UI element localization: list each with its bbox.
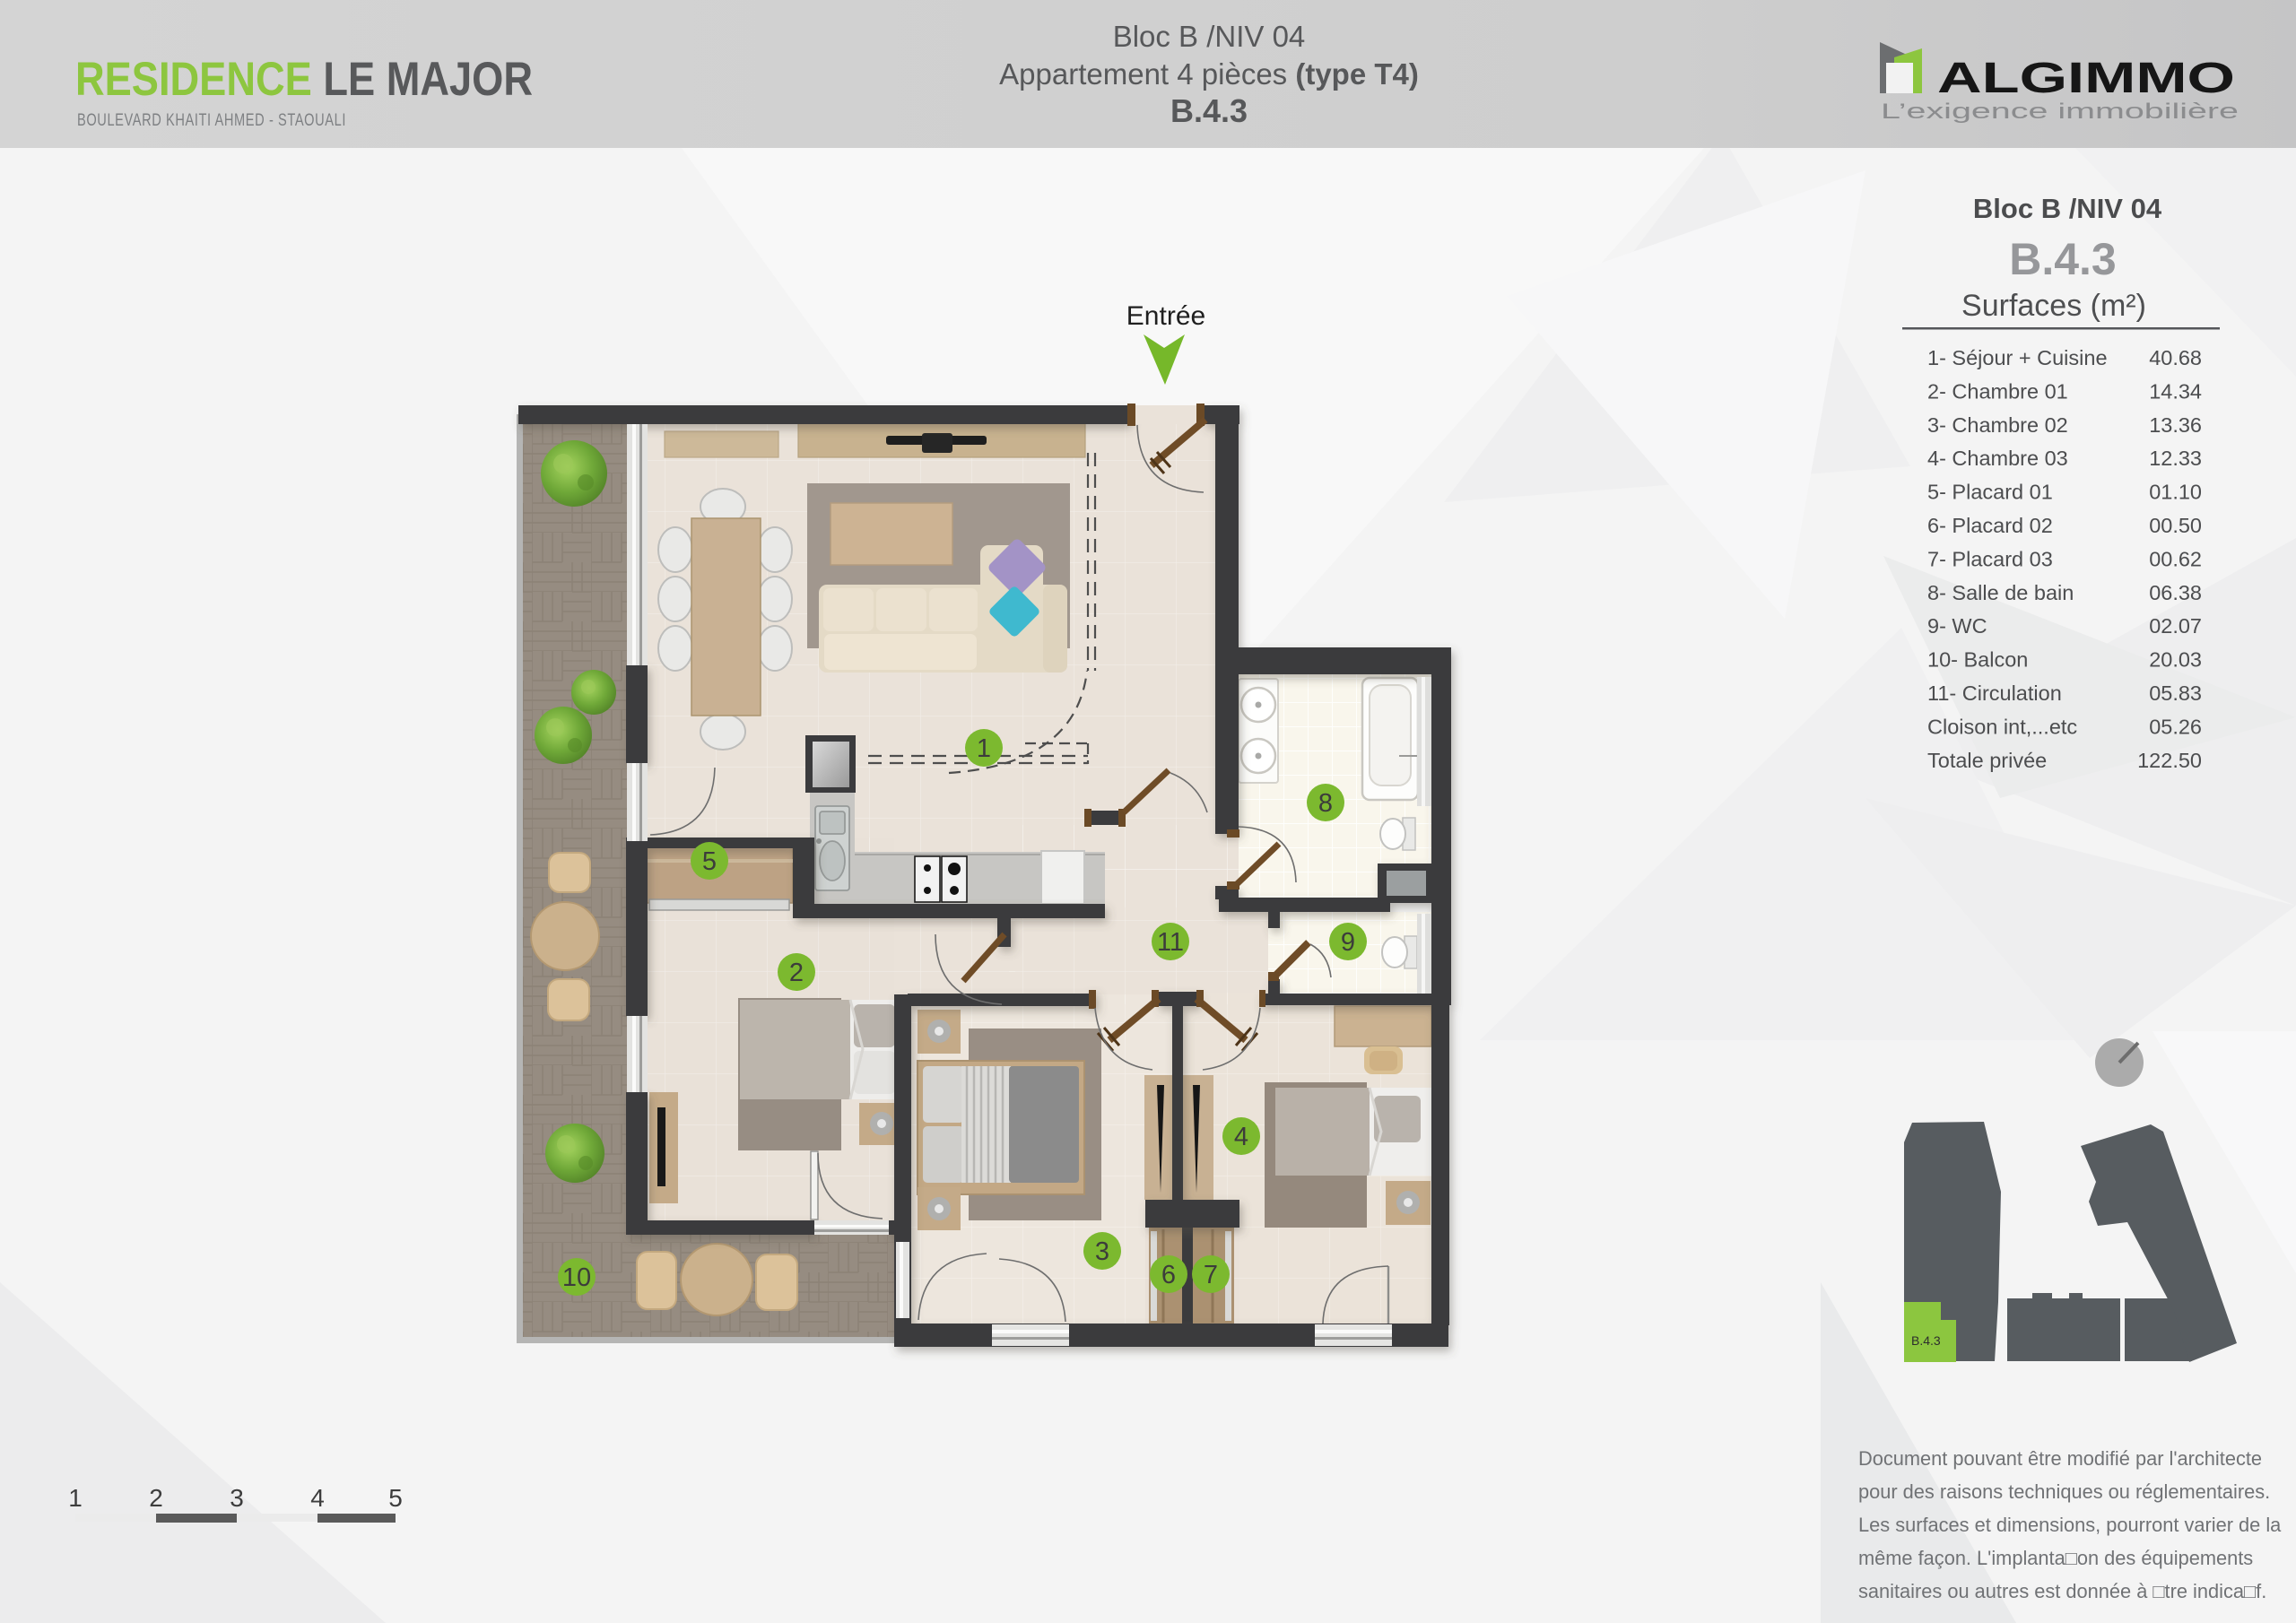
svg-text:Totale privée: Totale privée [1927, 749, 2047, 772]
svg-text:11: 11 [1157, 928, 1184, 957]
svg-text:7- Placard 03: 7- Placard 03 [1927, 547, 2053, 570]
svg-text:05.26: 05.26 [2149, 715, 2202, 738]
svg-text:00.50: 00.50 [2149, 514, 2202, 537]
svg-text:05.83: 05.83 [2149, 681, 2202, 705]
svg-text:RESIDENCE LE MAJOR: RESIDENCE LE MAJOR [75, 53, 533, 106]
svg-text:5: 5 [702, 847, 717, 876]
svg-text:3- Chambre 02: 3- Chambre 02 [1927, 413, 2068, 437]
svg-text:11- Circulation: 11- Circulation [1927, 681, 2062, 705]
svg-text:sanitaires ou autres est donn: sanitaires ou autres est donnée à □tre i… [1858, 1580, 2266, 1602]
svg-text:Bloc B /NIV 04: Bloc B /NIV 04 [1973, 193, 2162, 224]
svg-text:14.34: 14.34 [2149, 379, 2202, 403]
svg-text:même façon. L'implanta□on des: même façon. L'implanta□on des équipement… [1858, 1547, 2253, 1569]
svg-text:40.68: 40.68 [2149, 346, 2202, 369]
svg-text:B.4.3: B.4.3 [1911, 1333, 1941, 1348]
svg-text:4: 4 [310, 1484, 325, 1512]
svg-text:pour des raisons techniques ou: pour des raisons techniques ou réglement… [1858, 1480, 2270, 1503]
svg-text:01.10: 01.10 [2149, 481, 2202, 504]
svg-text:Bloc B /NIV 04: Bloc B /NIV 04 [1113, 20, 1306, 53]
svg-text:3: 3 [230, 1484, 244, 1512]
svg-text:9: 9 [1341, 928, 1355, 957]
svg-text:4- Chambre 03: 4- Chambre 03 [1927, 447, 2068, 470]
svg-text:ALGIMMO: ALGIMMO [1937, 55, 2235, 102]
svg-text:20.03: 20.03 [2149, 648, 2202, 672]
svg-text:9- WC: 9- WC [1927, 614, 1987, 638]
svg-text:2: 2 [789, 959, 804, 987]
svg-text:13.36: 13.36 [2149, 413, 2202, 437]
svg-text:BOULEVARD KHAITI AHMED - STAOU: BOULEVARD KHAITI AHMED - STAOUALI [77, 110, 346, 130]
svg-text:8- Salle de bain: 8- Salle de bain [1927, 581, 2074, 604]
svg-text:2- Chambre 01: 2- Chambre 01 [1927, 379, 2068, 403]
svg-text:10- Balcon: 10- Balcon [1927, 648, 2028, 672]
svg-text:8: 8 [1318, 789, 1333, 818]
svg-text:3: 3 [1095, 1237, 1109, 1266]
svg-text:6- Placard 02: 6- Placard 02 [1927, 514, 2053, 537]
svg-text:B.4.3: B.4.3 [2009, 234, 2117, 284]
svg-text:122.50: 122.50 [2137, 749, 2202, 772]
svg-text:12.33: 12.33 [2149, 447, 2202, 470]
svg-text:2: 2 [149, 1484, 163, 1512]
svg-text:7: 7 [1204, 1261, 1218, 1289]
svg-text:6: 6 [1161, 1261, 1176, 1289]
svg-text:00.62: 00.62 [2149, 547, 2202, 570]
svg-text:06.38: 06.38 [2149, 581, 2202, 604]
svg-text:Cloison int,...etc: Cloison int,...etc [1927, 715, 2077, 738]
svg-text:1- Séjour + Cuisine: 1- Séjour + Cuisine [1927, 346, 2108, 369]
svg-text:L’exigence immobilière: L’exigence immobilière [1881, 100, 2239, 124]
svg-text:Entrée: Entrée [1126, 301, 1205, 331]
svg-text:1: 1 [68, 1484, 83, 1512]
svg-text:Appartement 4 pièces (type T4): Appartement 4 pièces (type T4) [999, 57, 1419, 91]
svg-text:Les surfaces et dimensions, po: Les surfaces et dimensions, pourront var… [1858, 1514, 2282, 1536]
svg-text:5- Placard 01: 5- Placard 01 [1927, 481, 2053, 504]
svg-text:B.4.3: B.4.3 [1170, 92, 1248, 129]
svg-text:02.07: 02.07 [2149, 614, 2202, 638]
svg-text:Document pouvant être modifié: Document pouvant être modifié par l'arch… [1858, 1447, 2262, 1470]
svg-text:10: 10 [562, 1263, 591, 1292]
svg-text:1: 1 [977, 734, 991, 763]
svg-text:Surfaces (m²): Surfaces (m²) [1961, 289, 2146, 323]
svg-text:4: 4 [1234, 1123, 1248, 1151]
svg-text:5: 5 [388, 1484, 403, 1512]
